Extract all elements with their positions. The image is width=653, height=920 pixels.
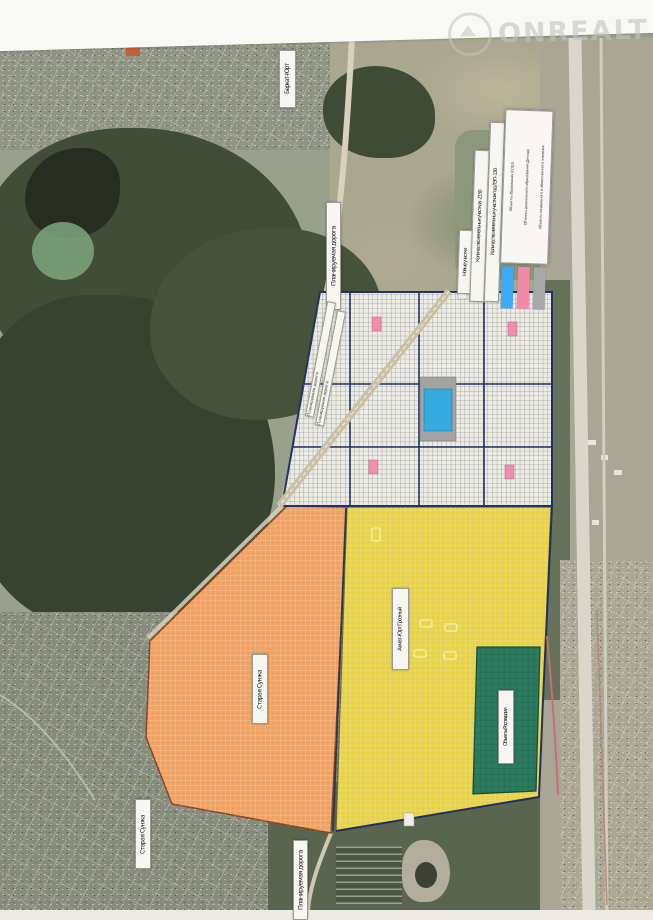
- label-planned-road-bottom: Планируемая дорога: [293, 840, 308, 920]
- kindergarten-marker-1: [372, 317, 381, 331]
- watermark-text: ONREALT: [498, 14, 650, 49]
- legend-swatch-school: [501, 266, 514, 308]
- label-rosgvardia: Объекты Росгвардии: [498, 690, 514, 764]
- parcel-tag-icon: [404, 813, 414, 826]
- side-road: [601, 38, 607, 910]
- highway: [575, 38, 589, 910]
- watermark: ONREALT: [447, 1, 653, 63]
- kindergarten-marker-3: [369, 460, 378, 474]
- zone-orange-grid: [146, 506, 347, 833]
- kindergarten-marker-4: [505, 465, 514, 479]
- label-planned-road-top: Планируемая дорога: [326, 202, 341, 310]
- label-akhmat-yurt: Ахмат-Юрт Грозный: [392, 588, 409, 670]
- label-berkat-yurt: Беркат-Юрт: [279, 50, 296, 108]
- red-route-green: [547, 636, 558, 795]
- legend-swatch-kindergarten: [517, 267, 530, 309]
- kindergarten-marker-2: [508, 322, 517, 336]
- river-line: [0, 695, 95, 800]
- map-photo: Беркат-Юрт Планируемая дорога Планируема…: [0, 0, 653, 910]
- legend-swatch-social: [533, 267, 546, 309]
- legend: Объекты образования (СОШ) Объекты дошкол…: [499, 109, 554, 310]
- legend-label-school: Объекты образования (СОШ): [509, 162, 515, 211]
- legend-box: Объекты образования (СОШ) Объекты дошкол…: [500, 109, 553, 265]
- onrealt-logo-icon: [447, 12, 492, 57]
- legend-label-kindergarten: Объекты дошкольного образования (Детсад): [523, 149, 530, 225]
- planned-road-south: [308, 833, 331, 910]
- label-staraya-sunzha-village: Старая Сунжа: [135, 799, 151, 869]
- plan-overlay: [0, 0, 653, 910]
- legend-swatches: [499, 266, 548, 310]
- label-staraya-sunzha-zone: Старая Сунжа: [252, 654, 268, 724]
- legend-label-social: Объекты социального и общественного знач…: [539, 146, 546, 230]
- school-marker: [424, 389, 452, 431]
